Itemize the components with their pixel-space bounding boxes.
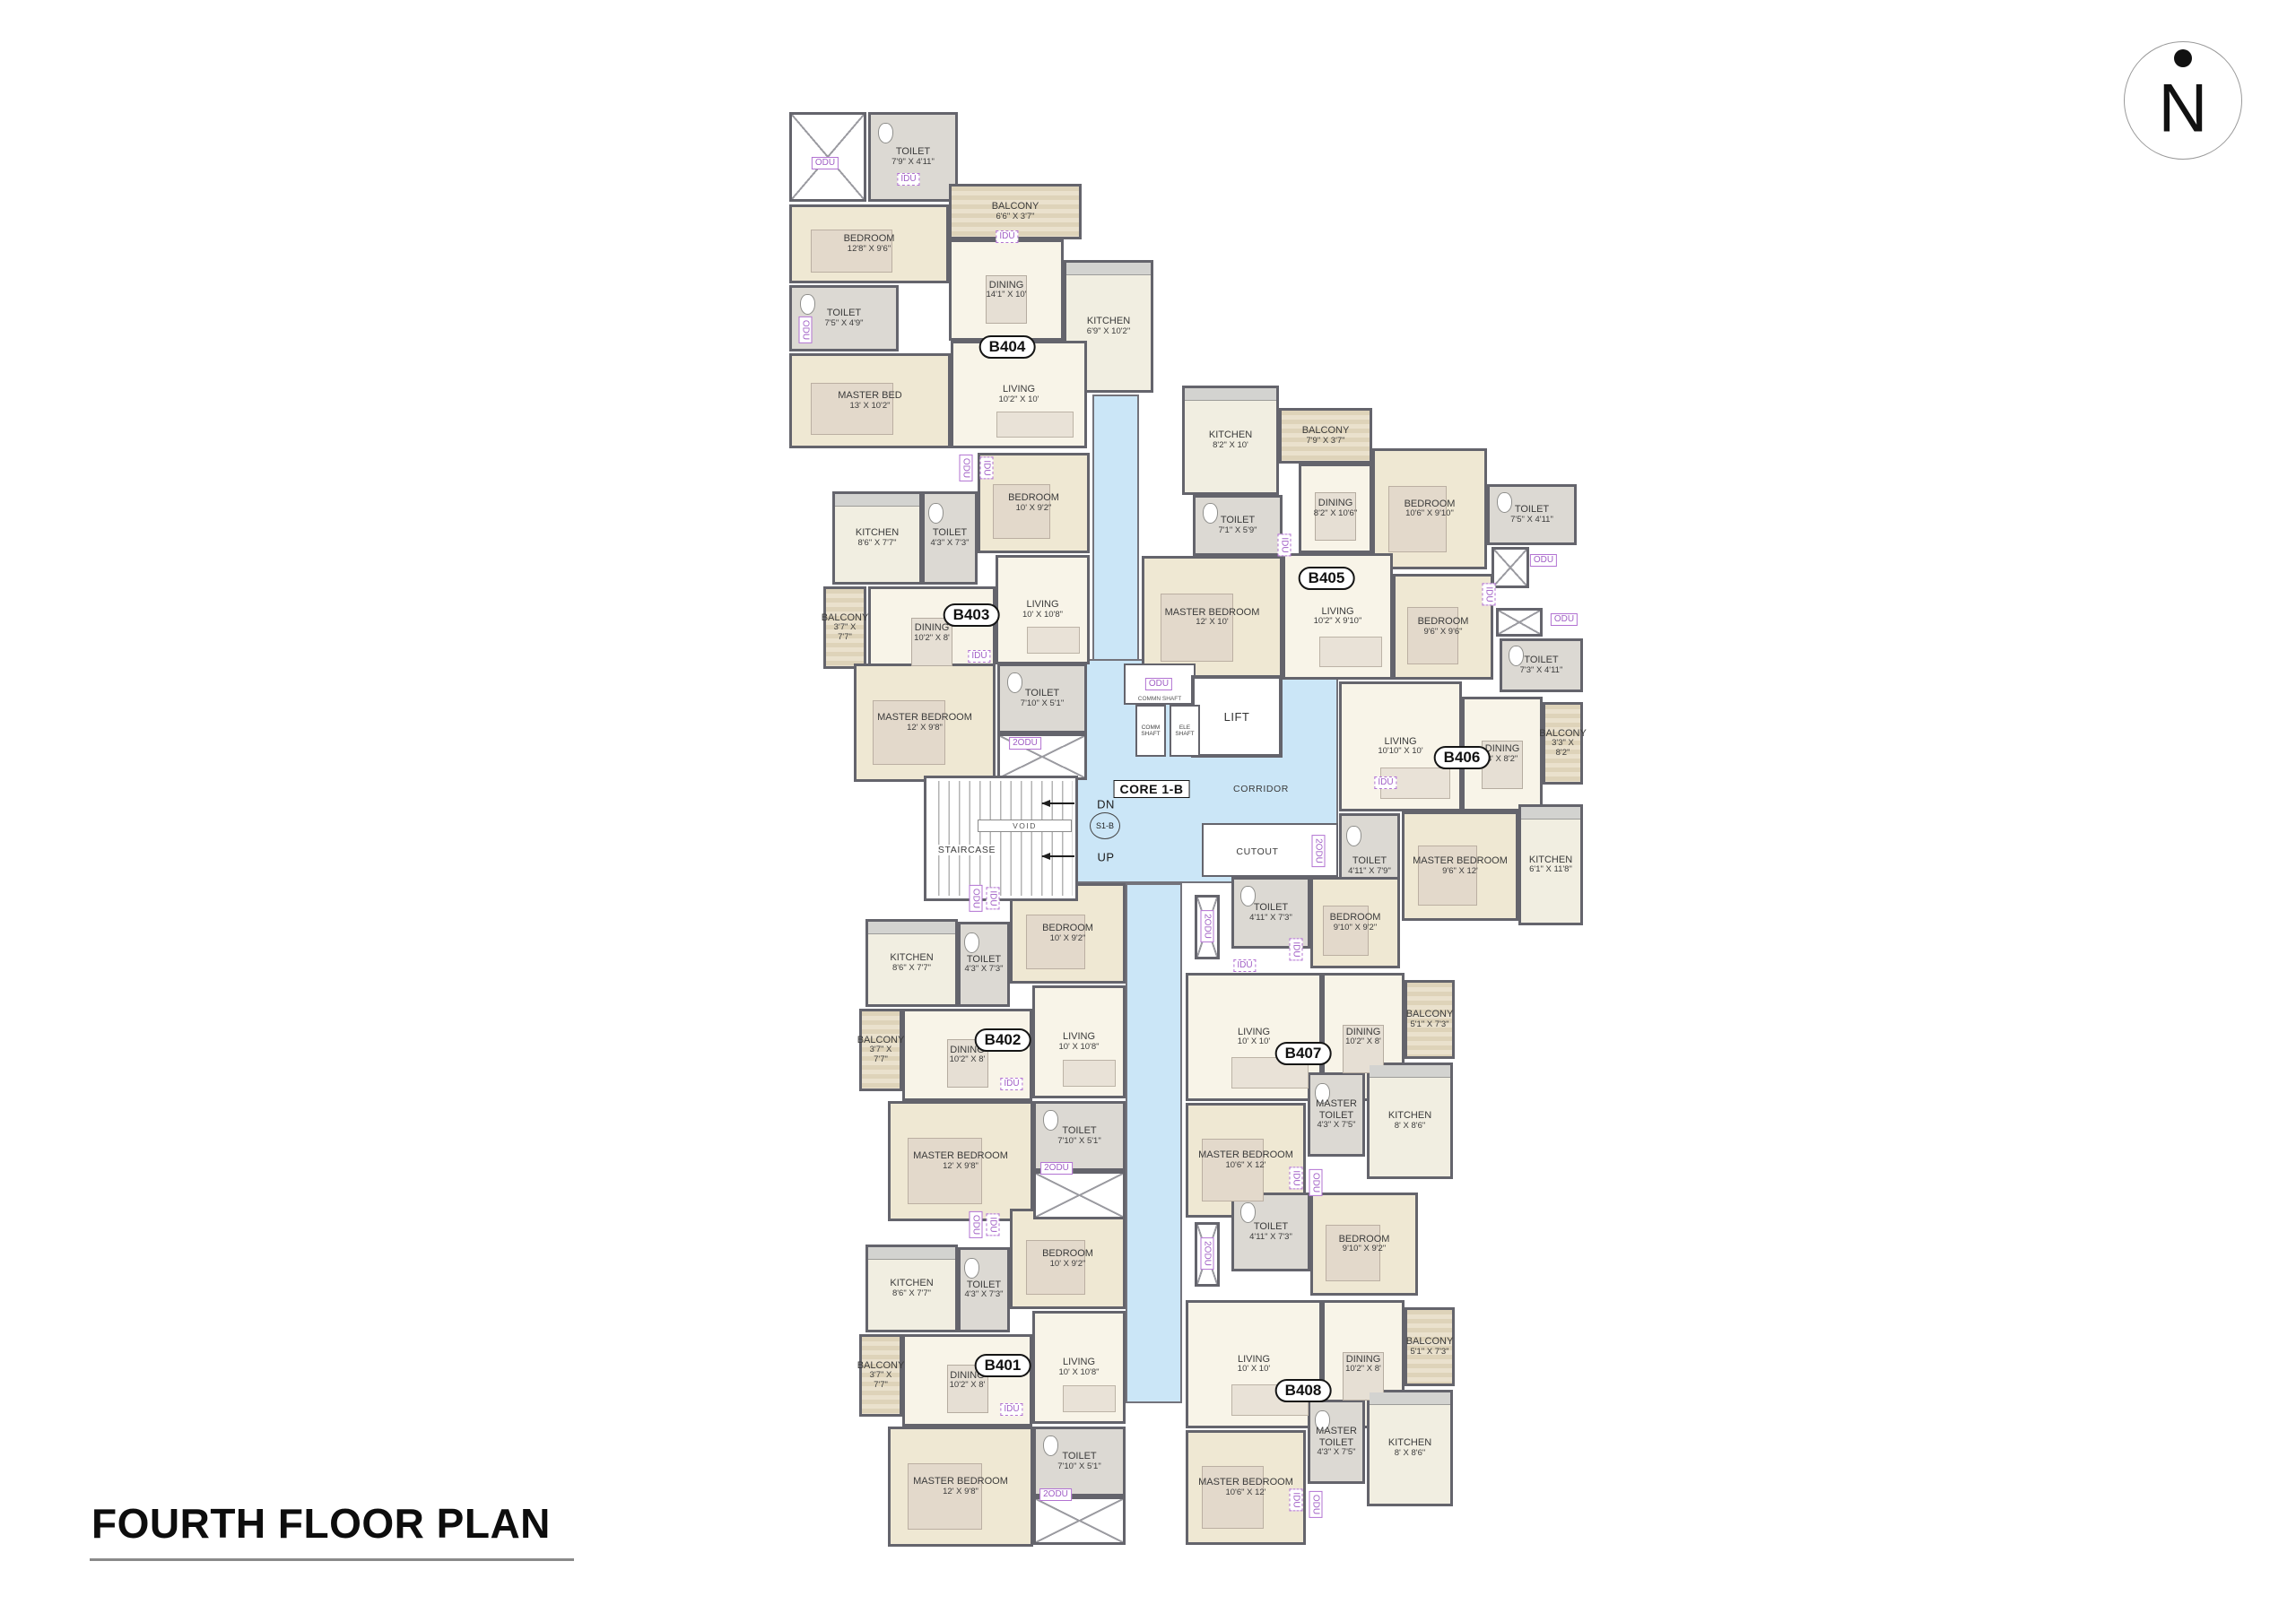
room-dims: 10'2" X 10': [998, 395, 1039, 405]
idu-marker: IDU: [1374, 776, 1396, 789]
room-dims: 12' X 10': [1196, 618, 1228, 628]
idu-marker: IDU: [1233, 959, 1256, 972]
room-label: BALCONY3'3" X 8'2": [1545, 705, 1580, 782]
room-b401-toilet: TOILET4'3" X 7'3": [958, 1247, 1010, 1332]
room-b403-living: LIVING10' X 10'8": [996, 555, 1090, 664]
plan-area: TOILET7'9" X 4'11"BEDROOM12'8" X 9'6"BAL…: [0, 0, 2296, 1622]
down-label: DN: [1097, 798, 1115, 811]
room-b401-living: LIVING10' X 10'8": [1032, 1311, 1126, 1424]
room-name: KITCHEN: [890, 952, 933, 964]
unit-label-b401: B401: [975, 1354, 1031, 1377]
room-dims: 8'6" X 7'7": [892, 964, 931, 974]
room-dims: 9'6" X 9'6": [1423, 628, 1462, 638]
room-name: TOILET: [1254, 902, 1288, 914]
down-label-arrow-icon: [1042, 802, 1074, 804]
room-label: KITCHEN6'1" X 11'8": [1521, 807, 1580, 923]
room-label: KITCHEN8'2" X 10': [1185, 388, 1276, 492]
north-indicator: N: [2124, 41, 2242, 160]
room-dims: 5'1" X 7'3": [1410, 1020, 1448, 1030]
room-label: DINING8'2" X 10'6": [1301, 466, 1370, 551]
room-label: KITCHEN8' X 8'6": [1370, 1392, 1450, 1504]
room-name: BALCONY: [1406, 1009, 1454, 1020]
idu-marker: IDU: [897, 173, 919, 186]
odu-marker: ODU: [799, 317, 813, 343]
room-label: BALCONY5'1" X 7'3": [1407, 983, 1452, 1056]
room-b406-kitchen: KITCHEN6'1" X 11'8": [1518, 804, 1583, 925]
room-dims: 7'5" X 4'9": [824, 319, 863, 329]
room-name: BEDROOM: [844, 233, 895, 245]
room-b407-master-toilet: MASTER TOILET4'3" X 7'5": [1308, 1072, 1365, 1157]
room-name: BALCONY: [992, 201, 1039, 213]
room-name: MASTER BEDROOM: [1413, 855, 1508, 867]
room-label: BEDROOM9'10" X 9'2": [1313, 1195, 1415, 1293]
room-b405-kitchen: KITCHEN8'2" X 10': [1182, 386, 1279, 495]
north-dot-icon: [2174, 49, 2192, 67]
room-b402-toilet: TOILET4'3" X 7'3": [958, 922, 1010, 1007]
room-dims: 4'3" X 7'3": [930, 539, 969, 549]
room-dims: 4'11" X 7'9": [1348, 867, 1391, 877]
room-dims: 6'1" X 11'8": [1529, 865, 1572, 875]
room-b408-balcony: BALCONY5'1" X 7'3": [1405, 1307, 1455, 1386]
room-name: KITCHEN: [1388, 1437, 1431, 1449]
room-dims: 3'7" X 7'7": [862, 1371, 900, 1391]
room-dims: 3'7" X 7'7": [826, 623, 864, 643]
room-b402-balcony: BALCONY3'7" X 7'7": [859, 1009, 902, 1091]
room-dims: 4'3" X 7'3": [964, 965, 1003, 975]
room-dims: 9'6" X 12': [1442, 867, 1478, 877]
room-dims: 10'6" X 12': [1225, 1161, 1265, 1171]
room-name: DINING: [1318, 498, 1353, 509]
room-label: BALCONY3'7" X 7'7": [862, 1011, 900, 1089]
room-label: TOILET4'11" X 7'3": [1234, 880, 1308, 946]
room-dims: 10' X 10'8": [1058, 1368, 1099, 1378]
room-name: MASTER BEDROOM: [913, 1476, 1008, 1488]
room-label: LIVING10'2" X 10': [953, 343, 1084, 446]
room-name: LIVING: [1063, 1357, 1095, 1368]
room-label: LIVING10' X 10'8": [998, 558, 1087, 662]
room-dims: 10' X 9'2": [1050, 934, 1086, 944]
room-name: MASTER BEDROOM: [877, 712, 972, 724]
room-name: BEDROOM: [1418, 616, 1469, 628]
room-label: KITCHEN8'6" X 7'7": [868, 1247, 955, 1330]
room-b407-balcony: BALCONY5'1" X 7'3": [1405, 980, 1455, 1059]
room-label: MASTER TOILET4'3" X 7'5": [1310, 1075, 1362, 1154]
room-name: BEDROOM: [1042, 923, 1093, 934]
room-label: BEDROOM9'10" X 9'2": [1313, 880, 1397, 966]
room-dims: 10' X 10': [1238, 1037, 1270, 1047]
room-dims: 6'6" X 3'7": [996, 213, 1034, 222]
room-dims: 7'10" X 5'1": [1057, 1137, 1100, 1147]
room-name: TOILET: [1062, 1451, 1096, 1462]
room-dims: 10' X 10': [1238, 1365, 1270, 1375]
room-b407-bedroom: BEDROOM9'10" X 9'2": [1310, 877, 1400, 968]
room-b405-bedroom: BEDROOM10'6" X 9'10": [1372, 448, 1487, 569]
room-name: DINING: [915, 622, 950, 634]
shaft: COMM SHAFT: [1135, 705, 1166, 757]
room-b403-kitchen: KITCHEN8'6" X 7'7": [832, 491, 922, 585]
room-name: DINING: [1485, 743, 1520, 755]
room-name: TOILET: [1062, 1125, 1096, 1137]
room-b405-toilet: TOILET7'5" X 4'11": [1487, 484, 1577, 545]
room-b403-toilet: TOILET7'10" X 5'1": [997, 664, 1087, 733]
staircase-label: STAIRCASE: [935, 845, 998, 855]
room-name: BEDROOM: [1008, 492, 1059, 504]
room-b407-kitchen: KITCHEN8' X 8'6": [1367, 1063, 1453, 1179]
room-b408-master-toilet: MASTER TOILET4'3" X 7'5": [1308, 1400, 1365, 1484]
room-dims: 10' X 9'2": [1050, 1260, 1086, 1270]
room-b408-toilet: TOILET4'11" X 7'3": [1231, 1193, 1310, 1271]
room-b408-bedroom: BEDROOM9'10" X 9'2": [1310, 1193, 1418, 1296]
room-label: MASTER BEDROOM12' X 9'8": [891, 1104, 1031, 1219]
room-dims: 8' X 8'6": [1395, 1122, 1425, 1132]
void-area: VOID: [978, 820, 1072, 832]
room-b401-balcony: BALCONY3'7" X 7'7": [859, 1334, 902, 1417]
room-label: MASTER BEDROOM12' X 9'8": [857, 666, 993, 779]
room-label: BALCONY5'1" X 7'3": [1407, 1310, 1452, 1383]
room-label: KITCHEN8' X 8'6": [1370, 1065, 1450, 1176]
room-label: MASTER BEDROOM9'6" X 12': [1405, 814, 1516, 918]
room-label: DINING10'2" X 8': [871, 589, 993, 677]
room-dims: 7'5" X 4'11": [1510, 516, 1553, 525]
2odu-marker: 2ODU: [1039, 1488, 1072, 1501]
idu-marker: IDU: [1278, 533, 1291, 556]
corridor-area: [1126, 883, 1182, 1403]
room-b401-master-bedroom: MASTER BEDROOM12' X 9'8": [888, 1427, 1033, 1547]
room-b407-living: LIVING10' X 10': [1186, 973, 1322, 1101]
room-dims: 8'6" X 7'7": [892, 1289, 931, 1299]
room-dims: 7'1" X 5'9": [1218, 526, 1257, 536]
room-dims: 10'2" X 8': [914, 634, 950, 644]
room-dims: 6'9" X 10'2": [1087, 327, 1130, 337]
room-b402-master-bedroom: MASTER BEDROOM12' X 9'8": [888, 1101, 1033, 1221]
room-dims: 9'10" X 9'2": [1343, 1245, 1386, 1254]
room-dims: 10' X 10'8": [1058, 1043, 1099, 1053]
storage-closet: [1033, 1496, 1126, 1545]
room-name: TOILET: [1524, 655, 1558, 666]
room-dims: 8'2" X 10': [1213, 441, 1248, 451]
shaft-label: ELE SHAFT: [1171, 724, 1198, 738]
room-b406-master-bedroom: MASTER BEDROOM9'6" X 12': [1402, 811, 1518, 921]
lift-label: LIFT: [1222, 710, 1253, 724]
room-name: KITCHEN: [890, 1278, 933, 1289]
idu-marker: IDU: [1290, 1167, 1303, 1189]
unit-label-b406: B406: [1434, 746, 1491, 769]
room-dims: 3'7" X 7'7": [862, 1045, 900, 1065]
room-dims: 10'2" X 8': [950, 1381, 986, 1391]
room-b402-living: LIVING10' X 10'8": [1032, 985, 1126, 1098]
odu-marker: ODU: [960, 455, 973, 481]
odu-marker: ODU: [970, 1211, 983, 1238]
room-name: MASTER BED: [838, 390, 902, 402]
room-dims: 4'11" X 7'3": [1249, 1233, 1292, 1243]
room-dims: 4'11" X 7'3": [1249, 914, 1292, 924]
room-b403-toilet: TOILET4'3" X 7'3": [922, 491, 978, 585]
room-label: KITCHEN8'6" X 7'7": [835, 494, 919, 582]
room-label: TOILET4'3" X 7'3": [925, 494, 975, 582]
room-label: TOILET7'5" X 4'11": [1490, 487, 1574, 542]
room-label: MASTER BED13' X 10'2": [792, 356, 948, 446]
room-dims: 4'3" X 7'5": [1317, 1121, 1355, 1131]
unit-label-b407: B407: [1275, 1042, 1332, 1065]
odu-marker: ODU: [970, 885, 983, 912]
room-dims: 7'10" X 5'1": [1021, 699, 1064, 709]
room-name: BALCONY: [1406, 1336, 1454, 1348]
corridor-label: CORRIDOR: [1233, 784, 1289, 794]
storage-closet: [1492, 547, 1529, 588]
core-tag: CORE 1-B: [1114, 780, 1190, 798]
storage-closet: [1496, 608, 1543, 637]
room-label: TOILET7'10" X 5'1": [1036, 1104, 1123, 1168]
room-dims: 10'2" X 8': [950, 1055, 986, 1065]
idu-marker: IDU: [968, 650, 990, 663]
room-name: TOILET: [933, 527, 967, 539]
room-b401-kitchen: KITCHEN8'6" X 7'7": [865, 1245, 958, 1332]
room-name: TOILET: [1254, 1221, 1288, 1233]
room-name: KITCHEN: [856, 527, 899, 539]
unit-label-b405: B405: [1299, 567, 1355, 590]
idu-marker: IDU: [980, 456, 994, 479]
room-label: TOILET4'3" X 7'3": [961, 1250, 1007, 1330]
floor-plan-canvas: TOILET7'9" X 4'11"BEDROOM12'8" X 9'6"BAL…: [0, 0, 2296, 1622]
unit-label-b404: B404: [979, 335, 1036, 359]
staircase: [924, 776, 1078, 901]
2odu-marker: 2ODU: [1040, 1162, 1073, 1175]
room-dims: 4'3" X 7'5": [1317, 1448, 1355, 1458]
room-label: TOILET7'1" X 5'9": [1196, 498, 1280, 553]
room-label: BEDROOM10' X 9'2": [980, 455, 1087, 551]
room-b401-toilet: TOILET7'10" X 5'1": [1033, 1427, 1126, 1496]
room-dims: 10'6" X 12': [1225, 1488, 1265, 1498]
room-label: LIVING10' X 10'8": [1035, 988, 1123, 1096]
room-label: TOILET7'9" X 4'11": [871, 115, 955, 199]
room-label: MASTER BEDROOM12' X 10': [1144, 559, 1280, 676]
idu-marker: IDU: [1000, 1403, 1022, 1416]
room-b403-master-bedroom: MASTER BEDROOM12' X 9'8": [854, 664, 996, 782]
idu-marker: IDU: [996, 230, 1018, 243]
room-label: BEDROOM9'6" X 9'6": [1396, 577, 1491, 677]
room-label: TOILET7'10" X 5'1": [1036, 1429, 1123, 1494]
room-label: BALCONY7'9" X 3'7": [1282, 411, 1370, 461]
room-b408-master-bedroom: MASTER BEDROOM10'6" X 12': [1186, 1430, 1306, 1545]
room-b403-balcony: BALCONY3'7" X 7'7": [823, 586, 866, 669]
shaft-label: COMM SHAFT: [1137, 724, 1164, 738]
room-name: TOILET: [1515, 504, 1549, 516]
room-label: BEDROOM10' X 9'2": [1013, 1211, 1123, 1306]
odu-marker: ODU: [1309, 1169, 1323, 1196]
north-letter: N: [2159, 70, 2208, 148]
room-dims: 8' X 8'6": [1395, 1449, 1425, 1459]
odu-marker: ODU: [1309, 1491, 1323, 1518]
room-b406-balcony: BALCONY3'3" X 8'2": [1543, 702, 1583, 785]
room-dims: 14'1" X 10': [986, 291, 1026, 300]
idu-marker: IDU: [1290, 938, 1303, 960]
room-dims: 7'3" X 4'11": [1520, 666, 1563, 676]
2odu-marker: 2ODU: [1201, 1237, 1214, 1270]
room-dims: 12' X 9'8": [907, 724, 943, 733]
room-name: BEDROOM: [1042, 1248, 1093, 1260]
room-b404-master-bed: MASTER BED13' X 10'2": [789, 353, 951, 448]
room-b402-bedroom: BEDROOM10' X 9'2": [1010, 883, 1126, 984]
room-dims: 10' X 9'2": [1016, 504, 1052, 514]
room-label: MASTER BEDROOM12' X 9'8": [891, 1429, 1031, 1544]
room-name: LIVING: [1063, 1031, 1095, 1043]
room-name: MASTER TOILET: [1310, 1426, 1362, 1448]
up-label: UP: [1097, 851, 1114, 864]
room-label: TOILET4'11" X 7'3": [1234, 1195, 1308, 1269]
room-label: MASTER BEDROOM10'6" X 12': [1188, 1433, 1303, 1542]
room-name: TOILET: [896, 146, 930, 158]
room-label: TOILET4'3" X 7'3": [961, 924, 1007, 1004]
room-name: BEDROOM: [1330, 912, 1381, 924]
room-label: BEDROOM10' X 9'2": [1013, 886, 1123, 981]
room-dims: 12'8" X 9'6": [848, 245, 891, 255]
stair-id-badge: S1-B: [1090, 812, 1120, 839]
room-label: LIVING10' X 10'8": [1035, 1314, 1123, 1421]
room-dims: 12' X 9'8": [943, 1162, 978, 1172]
idu-marker: IDU: [987, 887, 1000, 909]
unit-label-b408: B408: [1275, 1379, 1332, 1402]
room-b405-dining: DINING8'2" X 10'6": [1299, 464, 1372, 553]
2odu-marker: 2ODU: [1312, 835, 1326, 867]
room-b405-toilet: TOILET7'1" X 5'9": [1193, 495, 1283, 556]
stair-treads-icon: [929, 781, 1073, 896]
room-label: TOILET7'10" X 5'1": [1000, 666, 1084, 731]
room-name: MASTER BEDROOM: [913, 1150, 1008, 1162]
room-dims: 8' X 8'2": [1487, 755, 1518, 765]
room-b405-balcony: BALCONY7'9" X 3'7": [1279, 408, 1372, 464]
room-dims: 7'9" X 4'11": [891, 158, 935, 168]
room-b402-kitchen: KITCHEN8'6" X 7'7": [865, 919, 958, 1007]
room-dims: 8'2" X 10'6": [1314, 509, 1357, 519]
room-dims: 8'6" X 7'7": [857, 539, 896, 549]
room-dims: 13' X 10'2": [849, 402, 890, 412]
2odu-marker: 2ODU: [1201, 910, 1214, 942]
room-dims: 9'10" X 9'2": [1334, 924, 1377, 933]
room-dims: 7'9" X 3'7": [1306, 437, 1344, 447]
idu-marker: IDU: [1483, 583, 1496, 605]
odu-marker: ODU: [1551, 613, 1578, 626]
room-b404-bedroom: BEDROOM12'8" X 9'6": [789, 204, 949, 283]
room-b406-bedroom: BEDROOM9'6" X 9'6": [1393, 574, 1493, 680]
idu-marker: IDU: [987, 1213, 1000, 1236]
room-name: TOILET: [1221, 515, 1255, 526]
room-label: BALCONY3'7" X 7'7": [826, 589, 864, 666]
room-label: DINING14'1" X 10': [952, 242, 1061, 338]
room-label: TOILET7'3" X 4'11": [1502, 641, 1580, 690]
room-name: MASTER BEDROOM: [1198, 1477, 1293, 1488]
room-dims: 3'3" X 8'2": [1545, 739, 1580, 759]
room-name: LIVING: [1003, 384, 1035, 395]
room-name: MASTER TOILET: [1310, 1098, 1362, 1121]
room-b404-toilet: TOILET7'9" X 4'11": [868, 112, 958, 202]
room-name: TOILET: [827, 308, 861, 319]
room-label: KITCHEN8'6" X 7'7": [868, 922, 955, 1004]
room-label: LIVING10' X 10': [1188, 1303, 1319, 1426]
idu-marker: IDU: [1290, 1488, 1303, 1511]
room-name: LIVING: [1026, 599, 1058, 611]
room-b408-kitchen: KITCHEN8' X 8'6": [1367, 1390, 1453, 1506]
room-name: TOILET: [1352, 855, 1387, 867]
room-name: BALCONY: [1302, 425, 1350, 437]
room-dims: 4'3" X 7'3": [964, 1290, 1003, 1300]
room-b404-dining: DINING14'1" X 10': [949, 239, 1064, 341]
room-label: BALCONY3'7" X 7'7": [862, 1337, 900, 1414]
room-dims: 10'10" X 10': [1378, 747, 1422, 757]
room-label: LIVING10' X 10': [1188, 976, 1319, 1098]
room-b401-bedroom: BEDROOM10' X 9'2": [1010, 1209, 1126, 1309]
room-name: KITCHEN: [1209, 429, 1252, 441]
odu-marker: ODU: [1145, 678, 1172, 690]
page-title: FOURTH FLOOR PLAN: [90, 1499, 574, 1561]
room-name: TOILET: [1025, 688, 1059, 699]
room-label: MASTER TOILET4'3" X 7'5": [1310, 1402, 1362, 1481]
room-b403-bedroom: BEDROOM10' X 9'2": [978, 453, 1090, 553]
room-b402-toilet: TOILET7'10" X 5'1": [1033, 1101, 1126, 1171]
unit-label-b402: B402: [975, 1028, 1031, 1052]
room-dims: 10'2" X 8': [1345, 1037, 1381, 1047]
odu-marker: ODU: [1530, 554, 1557, 567]
odu-marker: ODU: [812, 157, 839, 169]
room-b408-living: LIVING10' X 10': [1186, 1300, 1322, 1428]
lift: LIFT: [1191, 675, 1283, 758]
room-b406-toilet: TOILET7'3" X 4'11": [1500, 638, 1583, 692]
room-dims: 10'2" X 9'10": [1314, 617, 1362, 627]
room-dims: 10' X 10'8": [1022, 611, 1063, 620]
room-name: MASTER BEDROOM: [1198, 1149, 1293, 1161]
room-dims: 5'1" X 7'3": [1410, 1348, 1448, 1357]
shaft: ELE SHAFT: [1170, 705, 1200, 757]
idu-marker: IDU: [1000, 1078, 1022, 1090]
room-label: BALCONY6'6" X 3'7": [952, 186, 1079, 237]
room-dims: 7'10" X 5'1": [1057, 1462, 1100, 1472]
room-label: BEDROOM12'8" X 9'6": [792, 207, 946, 281]
room-label: BEDROOM10'6" X 9'10": [1375, 451, 1484, 567]
cutout-label: CUTOUT: [1233, 846, 1281, 857]
2odu-marker: 2ODU: [1009, 737, 1041, 750]
room-name: KITCHEN: [1087, 316, 1130, 327]
up-label-arrow-icon: [1042, 855, 1074, 857]
unit-label-b403: B403: [944, 603, 1000, 627]
room-dims: 10'2" X 8': [1345, 1365, 1381, 1375]
room-name: KITCHEN: [1388, 1110, 1431, 1122]
room-dims: 12' X 9'8": [943, 1488, 978, 1497]
room-dims: 10'6" X 9'10": [1405, 509, 1454, 519]
room-b405-master-bedroom: MASTER BEDROOM12' X 10': [1142, 556, 1283, 679]
corridor-area: [1092, 395, 1139, 664]
